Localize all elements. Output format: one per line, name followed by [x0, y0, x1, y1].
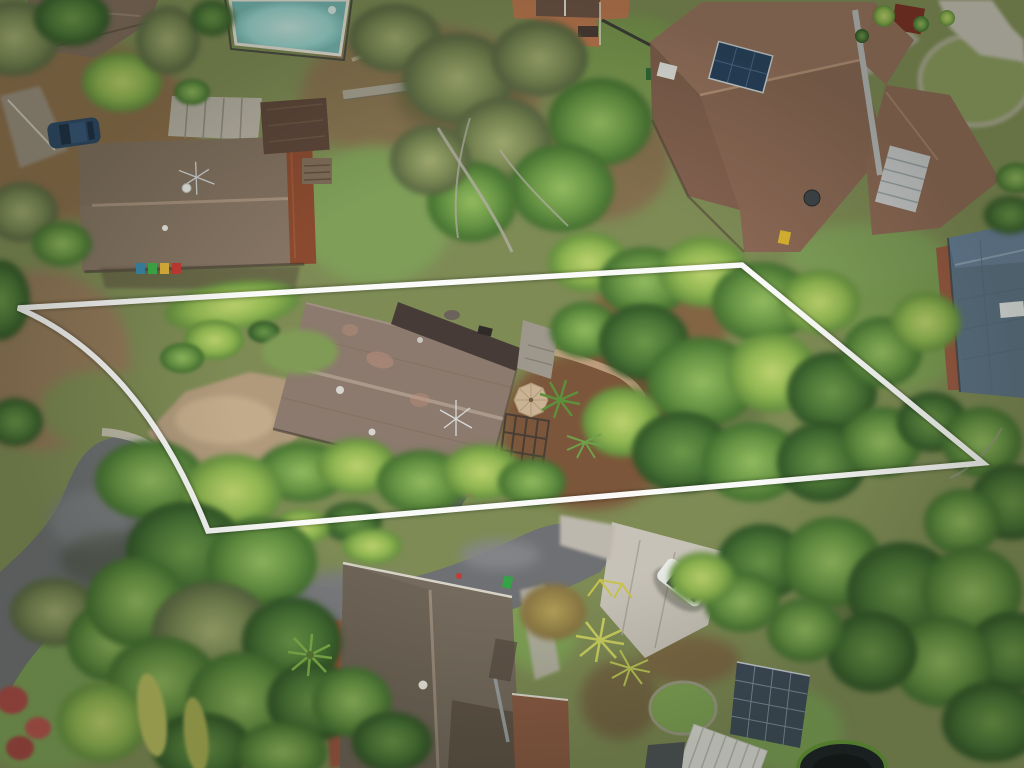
aerial-photo-canvas — [0, 0, 1024, 768]
aerial-photo — [0, 0, 1024, 768]
vignette-overlay — [0, 0, 1024, 768]
